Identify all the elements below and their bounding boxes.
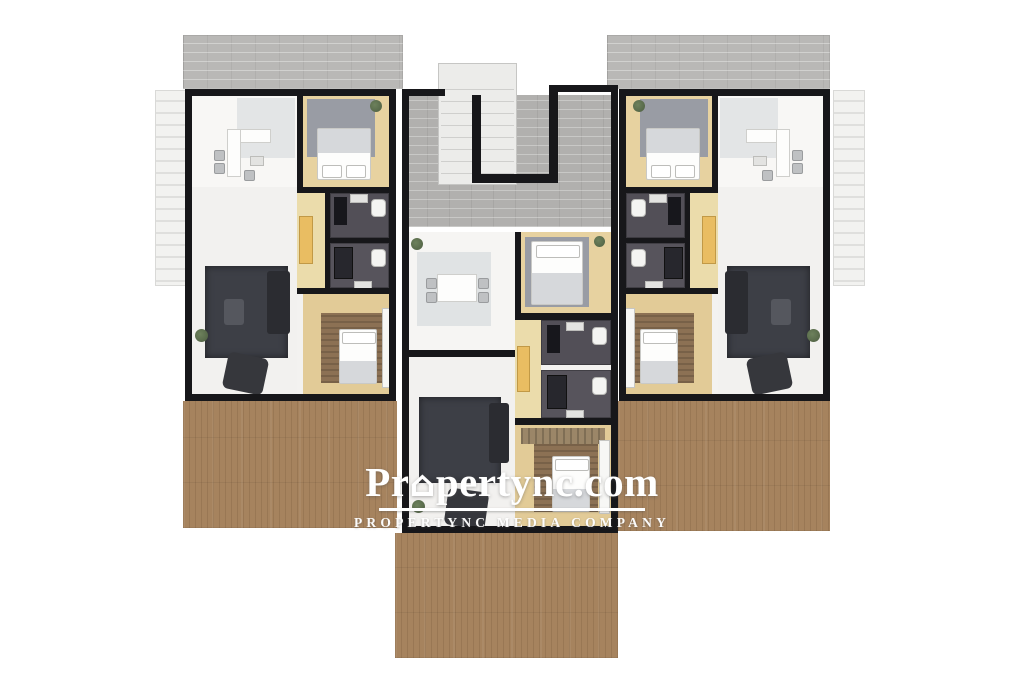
brand-prefix: Pr xyxy=(365,459,409,505)
chair xyxy=(426,292,437,303)
plant xyxy=(411,238,423,250)
right-bedroom-2 xyxy=(626,294,712,394)
pillow xyxy=(536,245,580,258)
center-office xyxy=(409,232,515,350)
bath-sink xyxy=(566,322,584,331)
toilet xyxy=(631,199,646,217)
shower xyxy=(334,247,353,279)
wall xyxy=(297,96,303,193)
chair xyxy=(762,170,773,181)
wall xyxy=(619,89,830,96)
wall xyxy=(515,313,611,320)
right-kitchen xyxy=(718,96,823,187)
bed-blanket xyxy=(532,273,582,304)
wall xyxy=(402,350,515,357)
bed xyxy=(640,329,678,384)
chair xyxy=(478,292,489,303)
bath-vanity xyxy=(334,197,347,225)
wall xyxy=(515,418,611,425)
accent-wall xyxy=(521,428,605,444)
left-bedroom-1 xyxy=(303,96,389,187)
stair-wall xyxy=(472,174,558,183)
plant xyxy=(594,236,605,247)
wall xyxy=(619,187,718,193)
pillow xyxy=(651,165,671,178)
wall xyxy=(626,238,685,243)
watermark: Pr⌂pertync.com PROPERTYNC MEDIA COMPANY xyxy=(0,460,1024,531)
kitchen-counter xyxy=(227,129,241,177)
stair-wall xyxy=(472,95,481,183)
wall xyxy=(297,187,396,193)
pillow xyxy=(675,165,695,178)
pillow xyxy=(643,332,677,344)
wall xyxy=(823,89,830,401)
left-bathroom-2 xyxy=(330,243,389,288)
wall xyxy=(330,238,389,243)
chair xyxy=(244,170,255,181)
wall xyxy=(619,288,718,294)
pillow xyxy=(342,332,376,344)
left-kitchen xyxy=(192,96,297,187)
wall xyxy=(185,394,396,401)
pergola-strip-left xyxy=(155,90,187,286)
wardrobe xyxy=(625,308,635,388)
toilet xyxy=(371,199,386,217)
wall xyxy=(619,89,626,401)
toilet xyxy=(371,249,386,267)
center-bathroom-2 xyxy=(541,370,611,418)
bed xyxy=(317,128,371,180)
table xyxy=(437,274,477,302)
center-closet-hall xyxy=(515,320,541,418)
wall xyxy=(611,85,618,232)
sofa xyxy=(489,403,509,463)
ottoman xyxy=(771,299,791,325)
chair xyxy=(792,150,803,161)
chair xyxy=(426,278,437,289)
shower xyxy=(547,375,567,409)
stair-wall xyxy=(549,85,558,183)
terrace-deck-bottom xyxy=(395,533,618,658)
wall xyxy=(297,288,396,294)
sofa xyxy=(267,271,290,334)
house-icon: ⌂ xyxy=(409,463,435,505)
sofa xyxy=(725,271,748,334)
bed-blanket xyxy=(340,361,376,383)
center-bathroom-1 xyxy=(541,320,611,365)
wall xyxy=(402,89,409,232)
closet-door xyxy=(517,346,530,392)
kitchen-counter xyxy=(776,129,790,177)
bath-sink xyxy=(350,194,368,203)
wall xyxy=(389,89,396,401)
shower xyxy=(664,247,683,279)
plant xyxy=(370,100,382,112)
wall xyxy=(549,85,618,92)
pillow xyxy=(322,165,342,178)
plant xyxy=(633,100,645,112)
bath-sink xyxy=(649,194,667,203)
plant xyxy=(195,329,208,342)
left-bathroom-1 xyxy=(330,193,389,238)
closet-door xyxy=(299,216,313,264)
plant xyxy=(807,329,820,342)
ottoman xyxy=(224,299,244,325)
wall xyxy=(402,89,445,96)
bed xyxy=(646,128,700,180)
right-bathroom-2 xyxy=(626,243,685,288)
right-bathroom-1 xyxy=(626,193,685,238)
kitchen-sink xyxy=(250,156,264,166)
bath-vanity xyxy=(547,325,560,353)
chair xyxy=(792,163,803,174)
brand-logo: Pr⌂pertync.com xyxy=(0,460,1024,506)
bed-blanket xyxy=(318,129,370,153)
pergola-strip-right xyxy=(833,90,865,286)
chair xyxy=(214,163,225,174)
kitchen-rug xyxy=(720,98,778,158)
armchair xyxy=(746,351,794,396)
toilet xyxy=(592,327,607,345)
wall xyxy=(185,89,396,96)
right-living-room xyxy=(718,187,823,394)
wall xyxy=(712,96,718,193)
bed-blanket xyxy=(647,129,699,153)
toilet xyxy=(631,249,646,267)
bed xyxy=(339,329,377,384)
kitchen-rug xyxy=(237,98,295,158)
bed xyxy=(531,241,583,305)
toilet xyxy=(592,377,607,395)
brand-suffix: pertync.com xyxy=(436,459,659,505)
wall xyxy=(515,232,521,320)
chair xyxy=(478,278,489,289)
wall xyxy=(685,193,690,288)
roof-slab-right xyxy=(607,35,830,89)
watermark-tagline: PROPERTYNC MEDIA COMPANY xyxy=(0,515,1024,531)
left-bedroom-2 xyxy=(303,294,389,394)
bath-vanity xyxy=(668,197,681,225)
right-bedroom-1 xyxy=(626,96,712,187)
closet-door xyxy=(702,216,716,264)
wall xyxy=(619,394,830,401)
roof-slab-left xyxy=(183,35,403,89)
center-bedroom-1 xyxy=(521,232,611,313)
kitchen-sink xyxy=(753,156,767,166)
bath-sink xyxy=(566,410,584,418)
left-living-room xyxy=(192,187,297,394)
chair xyxy=(214,150,225,161)
wall xyxy=(185,89,192,401)
armchair xyxy=(222,351,270,396)
bed-blanket xyxy=(641,361,677,383)
watermark-divider xyxy=(379,508,645,511)
pillow xyxy=(346,165,366,178)
floorplan-image: Pr⌂pertync.com PROPERTYNC MEDIA COMPANY xyxy=(0,0,1024,684)
